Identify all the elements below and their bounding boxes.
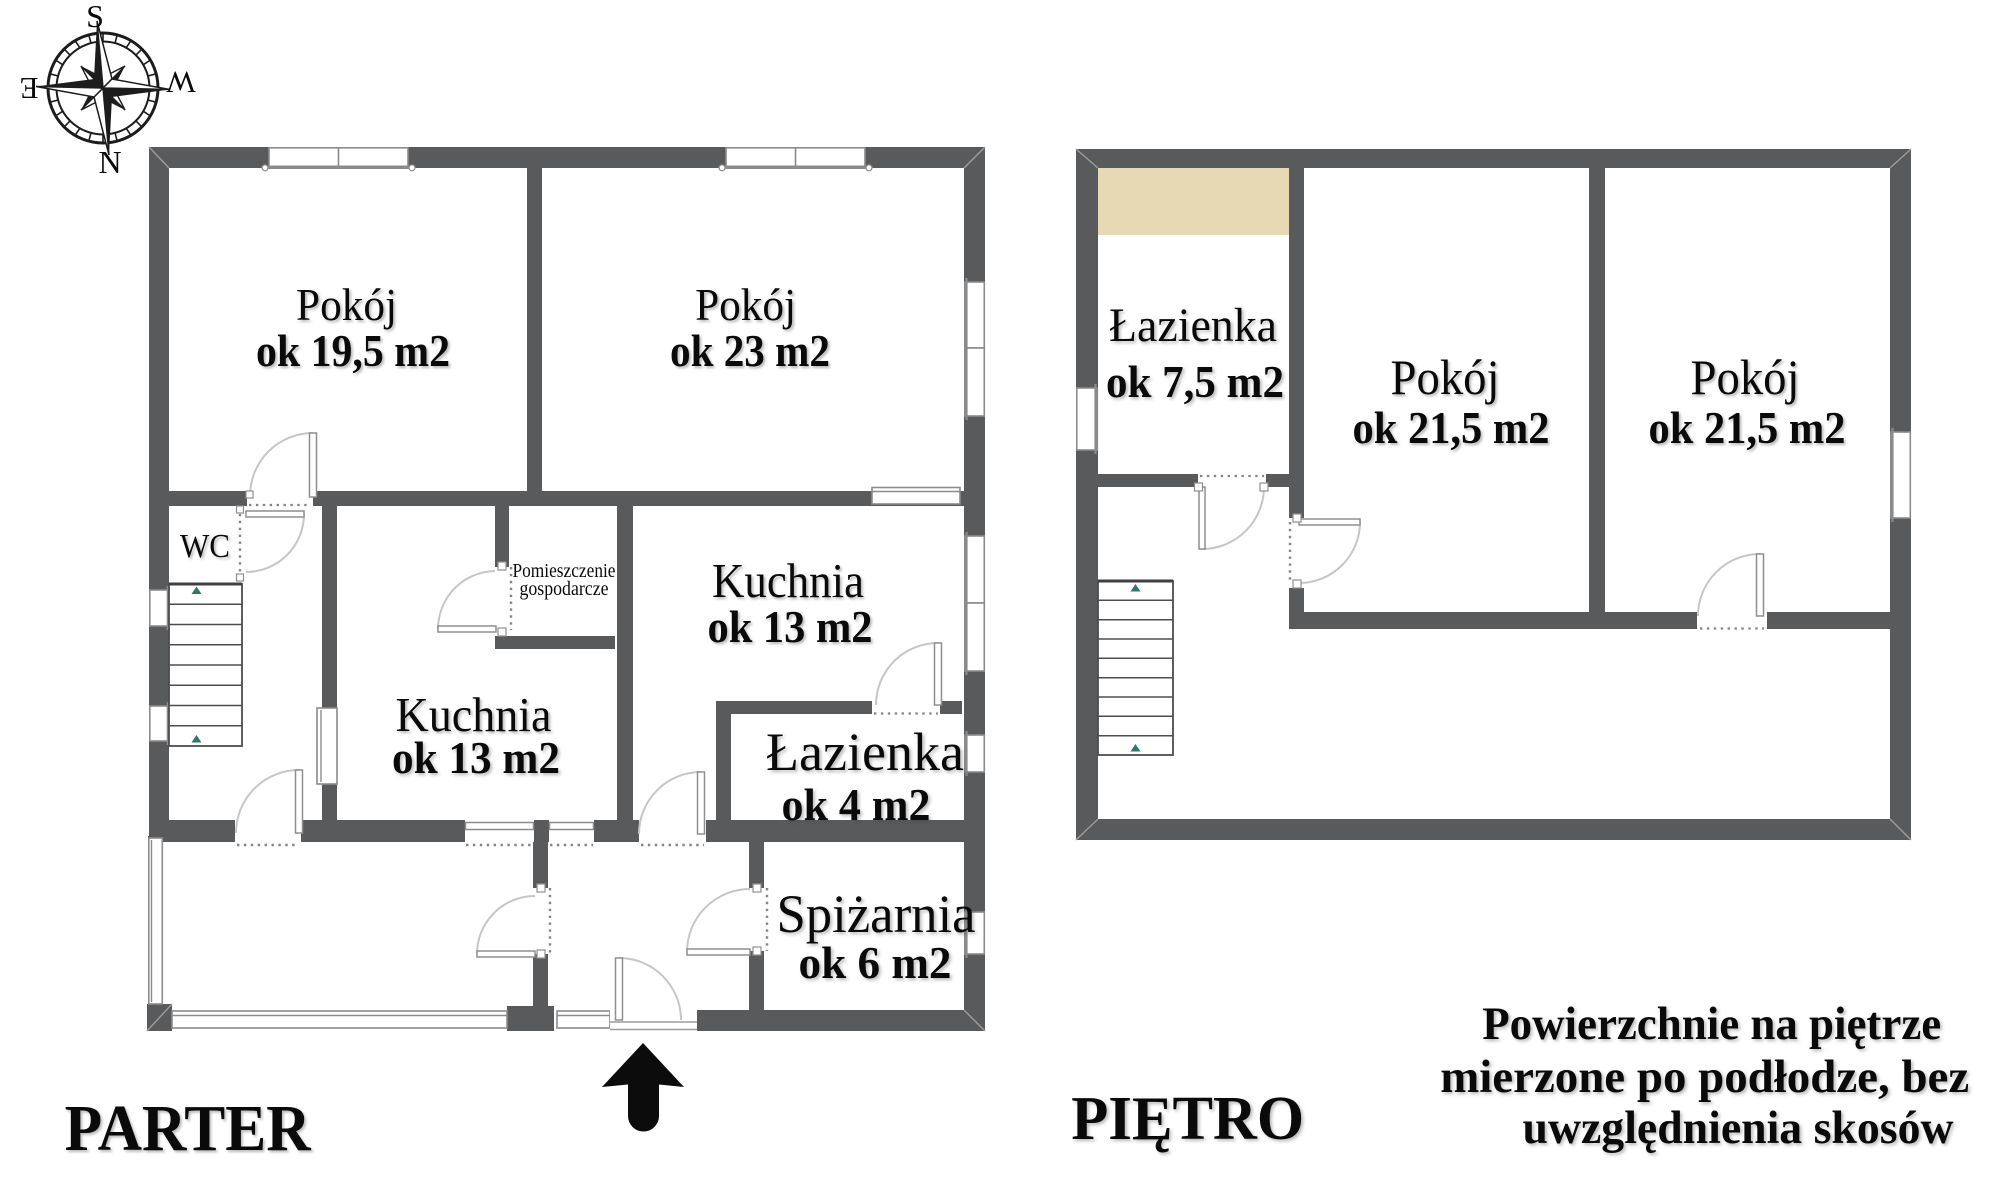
svg-text:Spiżarnia: Spiżarnia [777,884,976,944]
svg-text:ok 13 m2: ok 13 m2 [392,733,560,783]
svg-text:ok 23 m2: ok 23 m2 [670,326,830,376]
svg-text:Powierzchnie na piętrze: Powierzchnie na piętrze [1482,998,1941,1050]
svg-text:Pokój: Pokój [1391,349,1500,405]
svg-text:mierzone po podłodze, bez: mierzone po podłodze, bez [1440,1051,1969,1103]
svg-text:ok 13 m2: ok 13 m2 [708,602,873,652]
svg-text:PARTER: PARTER [65,1092,312,1165]
svg-text:uwzględnienia skosów: uwzględnienia skosów [1523,1102,1954,1154]
svg-text:Pokój: Pokój [296,279,397,330]
svg-text:Łazienka: Łazienka [766,722,964,782]
svg-text:ok 21,5 m2: ok 21,5 m2 [1353,402,1550,453]
svg-text:Pokój: Pokój [695,279,796,330]
svg-text:Łazienka: Łazienka [1109,299,1277,352]
svg-text:E: E [20,71,39,106]
svg-text:ok 6 m2: ok 6 m2 [799,938,952,988]
svg-text:W: W [166,65,196,100]
svg-text:ok 7,5 m2: ok 7,5 m2 [1106,357,1284,407]
svg-text:Pokój: Pokój [1691,349,1800,405]
svg-text:PIĘTRO: PIĘTRO [1071,1085,1304,1153]
svg-text:ok 21,5 m2: ok 21,5 m2 [1649,402,1846,453]
svg-text:N: N [98,144,121,180]
svg-text:gospodarcze: gospodarcze [520,578,609,600]
svg-text:WC: WC [180,528,230,565]
svg-text:Kuchnia: Kuchnia [712,553,864,608]
svg-text:S: S [86,0,104,34]
svg-text:ok 4 m2: ok 4 m2 [782,780,931,830]
svg-text:ok 19,5 m2: ok 19,5 m2 [256,326,450,376]
